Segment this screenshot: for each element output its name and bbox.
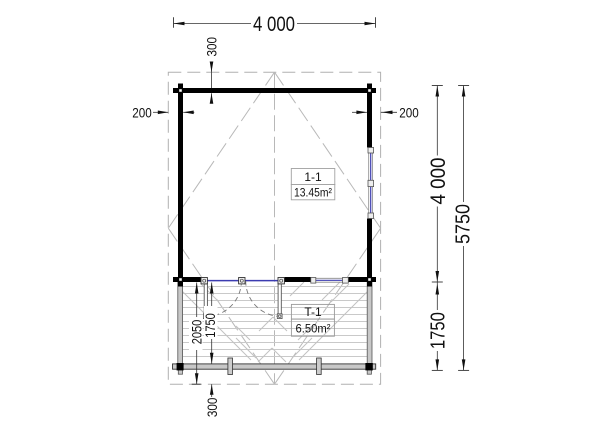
svg-text:4 000: 4 000 — [253, 13, 295, 36]
svg-text:300: 300 — [204, 37, 220, 57]
svg-text:T-1: T-1 — [304, 305, 322, 319]
svg-text:200: 200 — [399, 104, 419, 120]
svg-text:6.50m²: 6.50m² — [296, 322, 331, 336]
svg-text:1750: 1750 — [427, 312, 449, 349]
svg-text:1750: 1750 — [202, 313, 218, 338]
svg-text:300: 300 — [204, 397, 220, 417]
svg-text:13.45m²: 13.45m² — [294, 186, 332, 200]
svg-text:1-1: 1-1 — [304, 170, 322, 184]
svg-text:4 000: 4 000 — [427, 158, 450, 205]
svg-text:200: 200 — [132, 104, 152, 120]
svg-text:5750: 5750 — [453, 204, 475, 244]
